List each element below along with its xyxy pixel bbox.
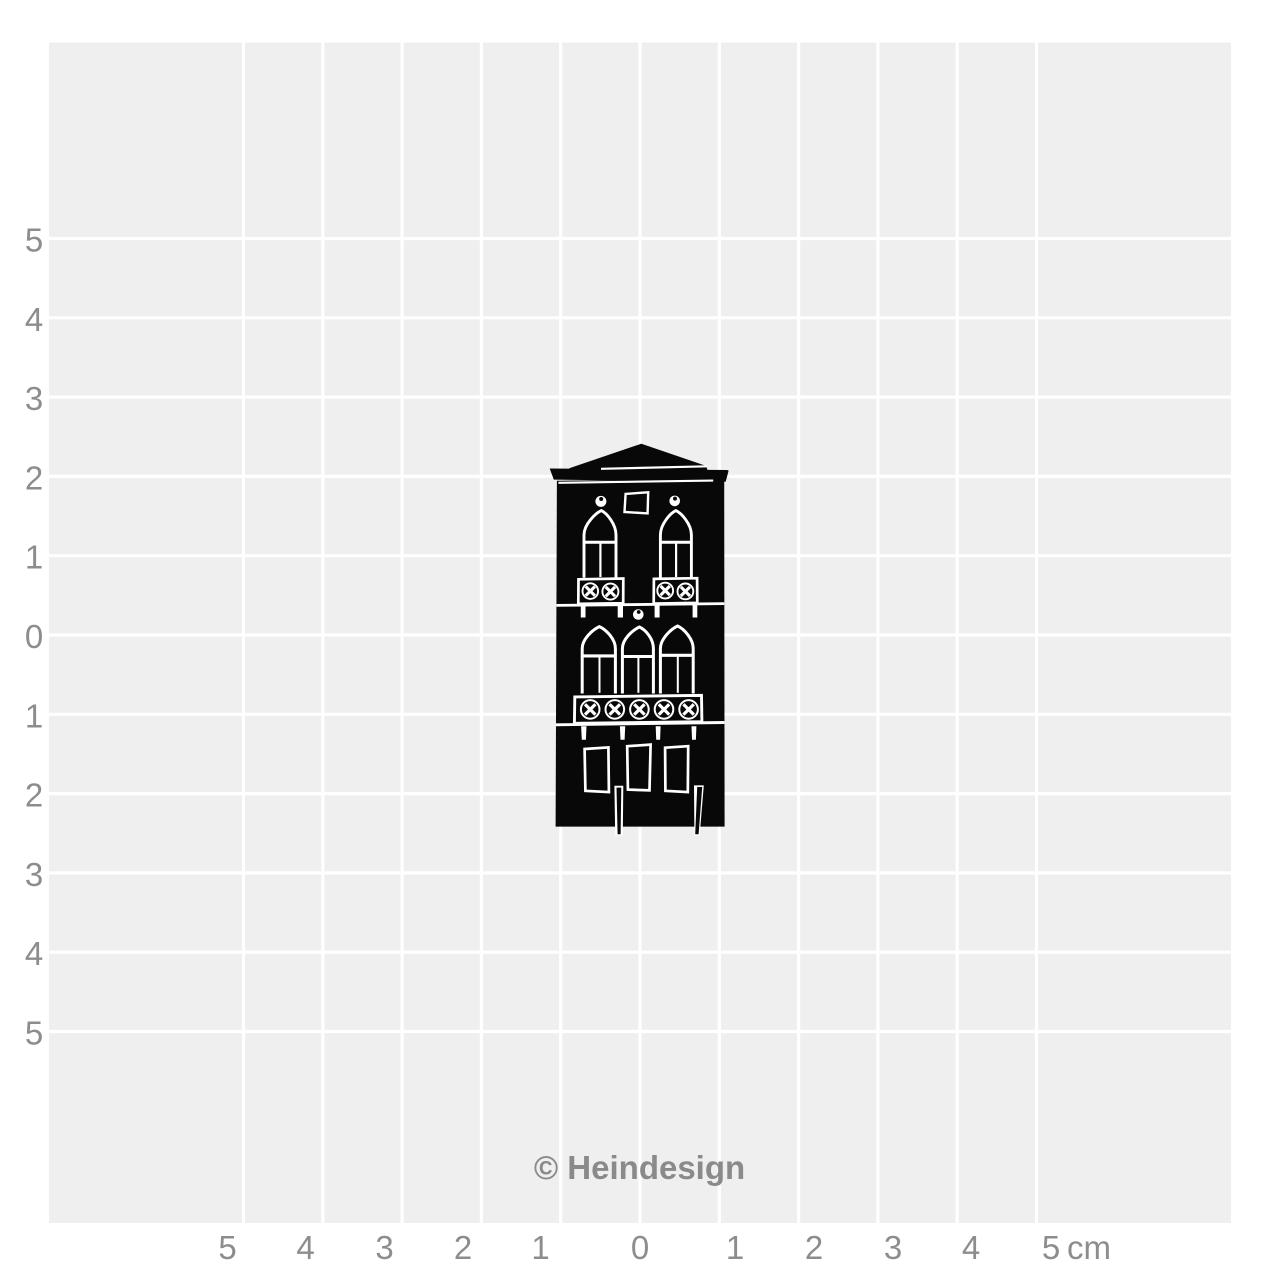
svg-text:4: 4	[25, 935, 43, 972]
svg-text:1: 1	[531, 1229, 549, 1266]
svg-text:0: 0	[25, 618, 43, 655]
svg-text:5: 5	[25, 1015, 43, 1052]
svg-text:1: 1	[25, 697, 43, 734]
svg-text:4: 4	[296, 1229, 314, 1266]
svg-text:2: 2	[25, 459, 43, 496]
svg-text:2: 2	[805, 1229, 823, 1266]
svg-text:1: 1	[25, 539, 43, 576]
svg-text:5: 5	[1042, 1229, 1060, 1266]
svg-text:cm: cm	[1067, 1229, 1111, 1266]
svg-text:3: 3	[25, 856, 43, 893]
svg-text:© Heindesign: © Heindesign	[534, 1149, 745, 1186]
svg-text:4: 4	[25, 301, 43, 338]
svg-text:1: 1	[726, 1229, 744, 1266]
svg-text:3: 3	[884, 1229, 902, 1266]
svg-text:5: 5	[218, 1229, 236, 1266]
svg-text:5: 5	[25, 222, 43, 259]
svg-text:3: 3	[375, 1229, 393, 1266]
svg-text:2: 2	[454, 1229, 472, 1266]
svg-text:3: 3	[25, 380, 43, 417]
svg-text:0: 0	[631, 1229, 649, 1266]
svg-text:4: 4	[962, 1229, 980, 1266]
svg-text:2: 2	[25, 777, 43, 814]
